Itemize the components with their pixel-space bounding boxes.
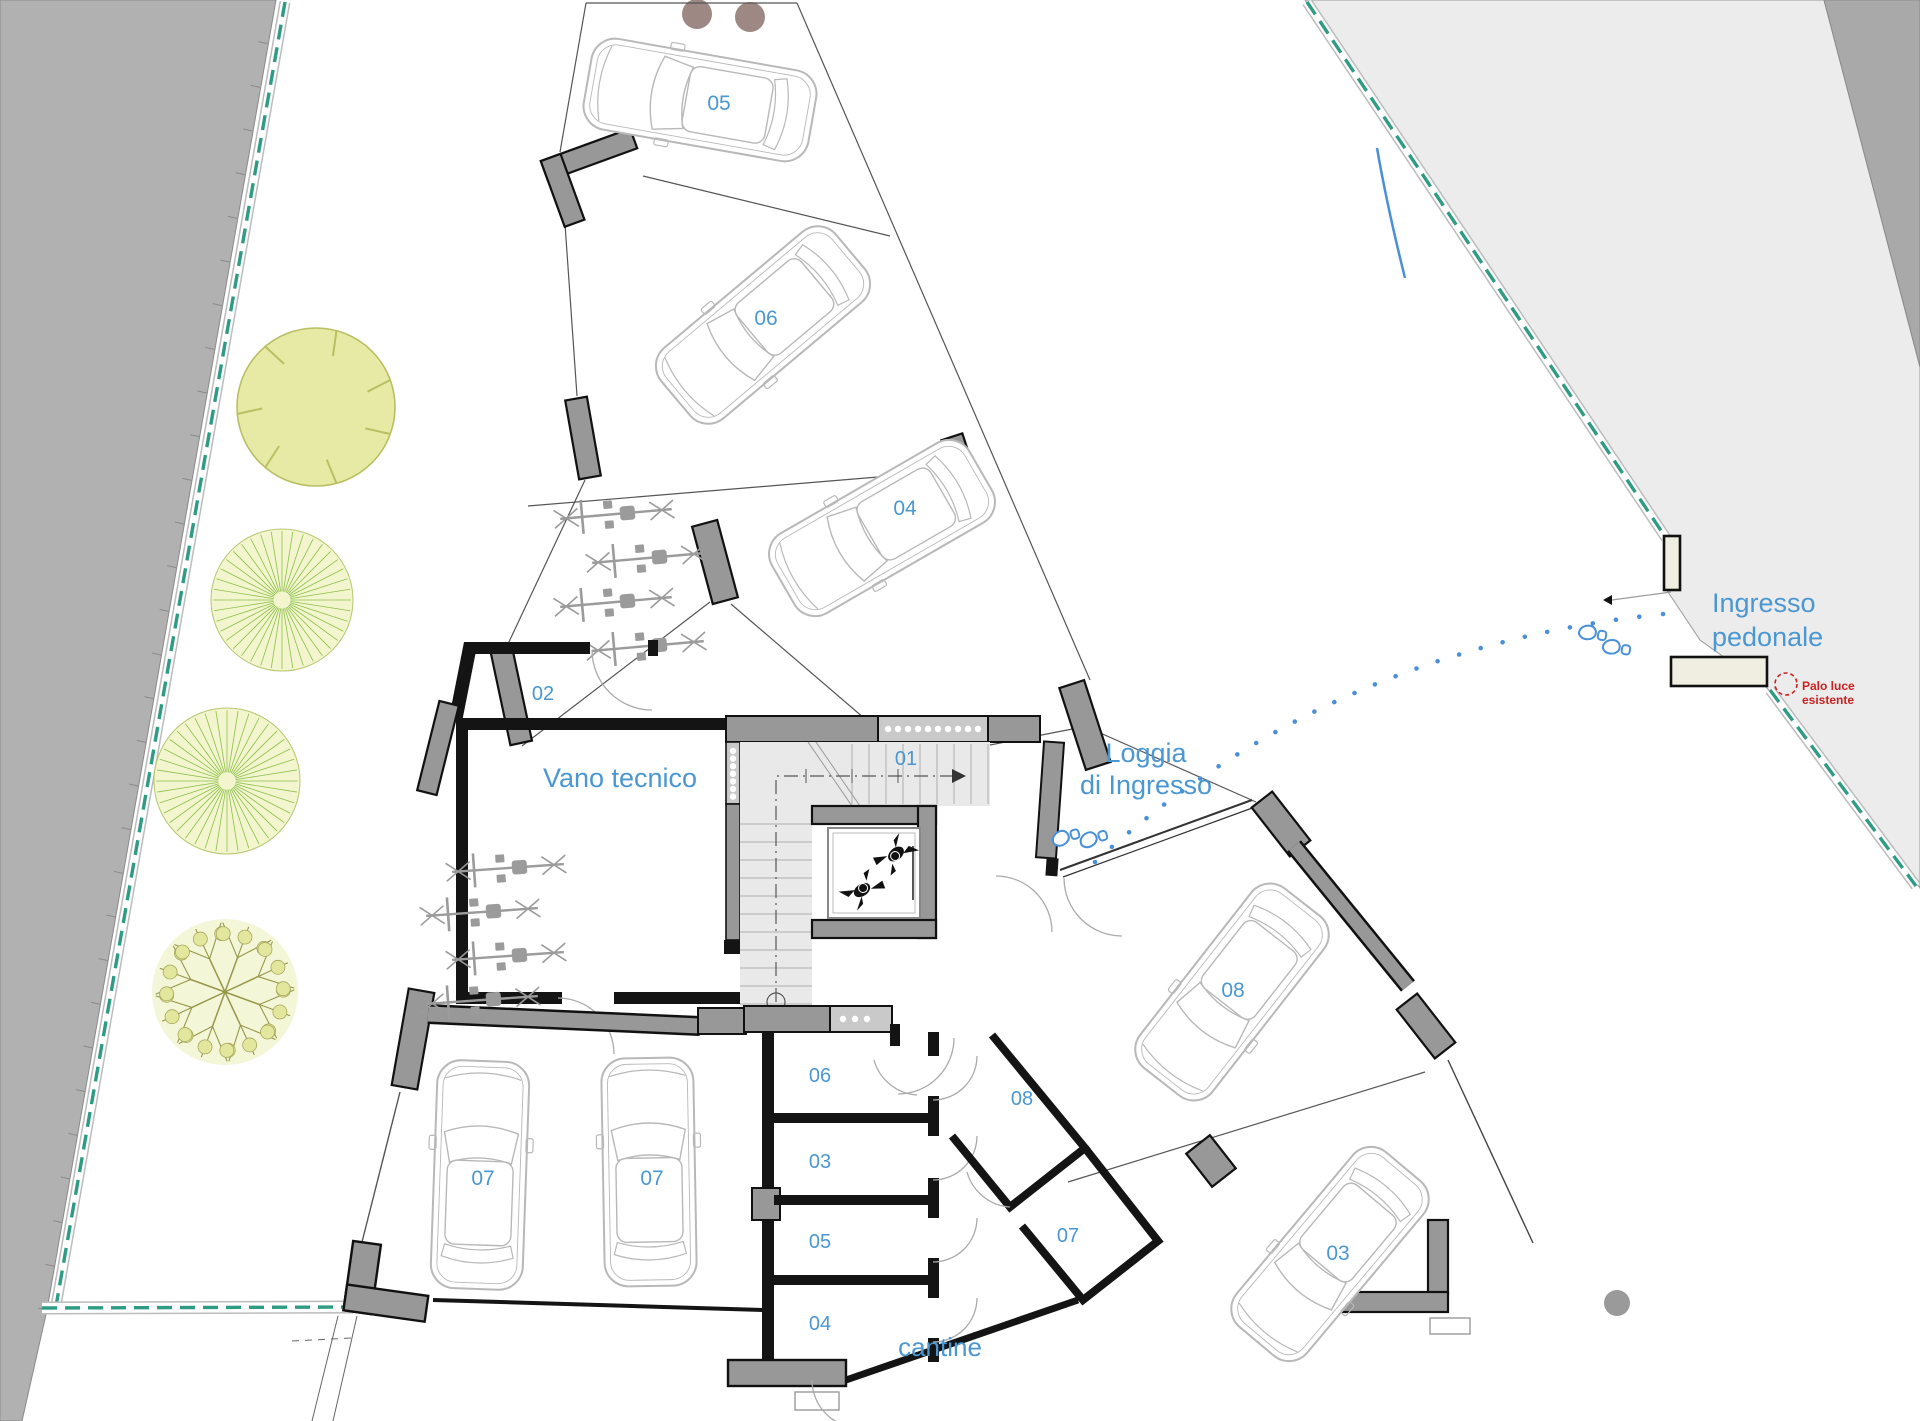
label-palo-line2: esistente [1802,693,1854,707]
label-loggia-line2: di Ingresso [1080,770,1212,800]
tree-scalloped [237,328,395,486]
elevator-cab [828,828,920,918]
gate-arrow [1603,595,1612,605]
cantina-08-walls [952,1035,1085,1207]
footprints-icon [1576,624,1633,657]
wall-garage-bottom [433,1300,764,1310]
wall-corridor-south-glass [830,1006,892,1032]
door-arc-corridor-east [898,1038,954,1094]
label-parking-07b: 07 [640,1167,663,1190]
wall-north-glassblock [878,716,990,742]
wall-corridor-south-2 [744,1006,830,1032]
label-loggia-line1: Loggia [1105,738,1187,768]
pillar-L-north [541,129,654,227]
label-parking-05: 05 [707,92,730,115]
surrounding-roads [0,0,1920,1421]
bollard-circle-2 [735,2,765,32]
door-arc-loggia [996,876,1052,932]
label-cantina-08: 08 [1011,1088,1033,1110]
label-cantina-05: 05 [809,1231,831,1253]
fence-south-horizontal [42,1307,353,1308]
wall-stair-west-gray [726,804,740,940]
vent-box-east [1430,1318,1470,1334]
elevator-shaft-bottom [812,920,936,938]
jamb-stair-west [724,940,742,954]
gate-wall [1671,657,1767,686]
site-plan-drawing: 05 06 04 07 07 08 03 02 01 Vano tecnico … [0,0,1920,1421]
label-palo-line1: Palo luce [1802,679,1855,693]
label-cantina-07: 07 [1057,1225,1079,1247]
driveway-edges [292,1316,357,1421]
car-04 [757,426,1006,630]
wall-stack-bottom [728,1360,846,1386]
jamb-loggia [1045,858,1058,877]
label-room-01: 01 [895,748,917,770]
gate-line [1612,592,1671,600]
floor-plan-canvas: 05 06 04 07 07 08 03 02 01 Vano tecnico … [0,0,1920,1421]
bike-rack-north [553,492,708,668]
jamb-corridor [890,1024,900,1046]
garage-west [343,847,764,1322]
wall-vano-bottom-right [614,992,740,1004]
pole-circle-southeast [1604,1290,1630,1316]
door-arcs-stack [933,1056,977,1342]
boundary-east-thin [1448,1060,1533,1243]
label-ingresso-line2: pedonale [1712,622,1823,652]
utility-mark-blue [1377,148,1405,278]
wall-div-06-03 [774,1113,936,1123]
wall-room02-top [464,642,590,654]
door-arc-garage-east [1064,878,1122,936]
wall-north-gray [726,716,880,742]
elevator [812,806,936,938]
gate-pillar [1664,536,1680,590]
label-parking-03: 03 [1326,1242,1349,1265]
wall-div-05-04 [774,1275,936,1285]
wall-north-gray2 [988,716,1040,742]
bollard-circle-1 [682,0,712,29]
jamb-room02 [648,640,658,656]
cantina-07-walls [1022,1148,1158,1300]
garage-west-edge [362,1092,400,1242]
label-cantina-04: 04 [809,1313,831,1335]
pillar-east-south [1428,1220,1448,1294]
wall-corridor-south-1 [698,1008,746,1034]
label-parking-07a: 07 [471,1167,494,1190]
label-cantina-03: 03 [809,1151,831,1173]
label-parking-08: 08 [1221,979,1244,1002]
door-arc-cantina-08 [874,1060,917,1095]
wall-div-03-05 [774,1195,936,1205]
label-cantina-06: 06 [809,1065,831,1087]
pillar-east-mid [1397,994,1456,1059]
pillar-L-garage-southwest [343,1241,434,1322]
parking-pillars [490,129,1111,770]
label-room-02: 02 [532,683,554,705]
label-parking-04: 04 [893,497,917,520]
label-cantine: cantine [898,1332,982,1362]
parking-north [490,3,1256,802]
label-ingresso-line1: Ingresso [1712,588,1816,618]
label-vano-tecnico: Vano tecnico [543,763,697,793]
pillar-room02-west [417,701,459,795]
wall-north-black [456,718,728,730]
garage-east [874,792,1533,1375]
glassblock-dots-corridor [840,1016,870,1022]
label-parking-06: 06 [754,307,777,330]
